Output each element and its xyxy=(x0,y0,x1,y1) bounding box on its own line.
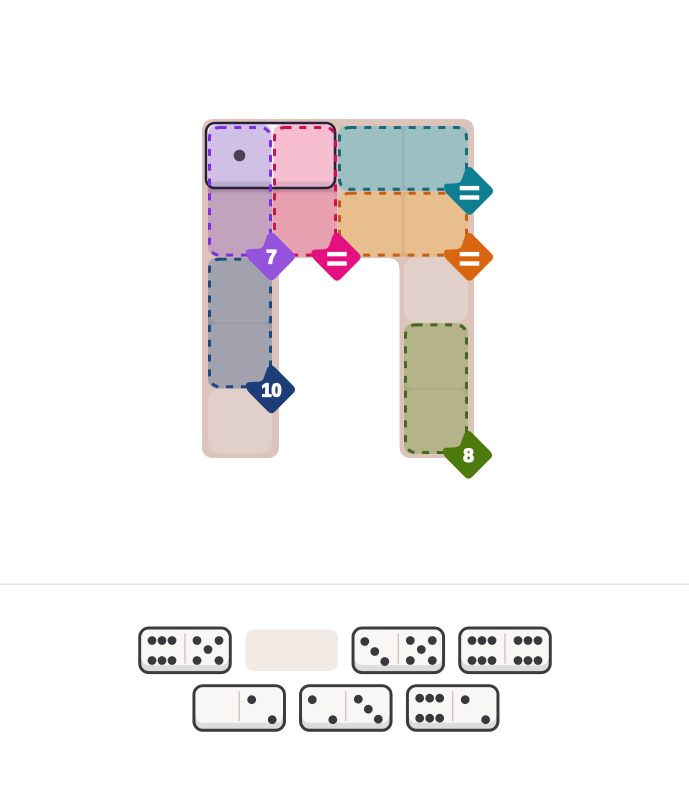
svg-text:8: 8 xyxy=(463,446,474,467)
svg-text:7: 7 xyxy=(266,248,277,269)
svg-text:10: 10 xyxy=(261,381,281,401)
